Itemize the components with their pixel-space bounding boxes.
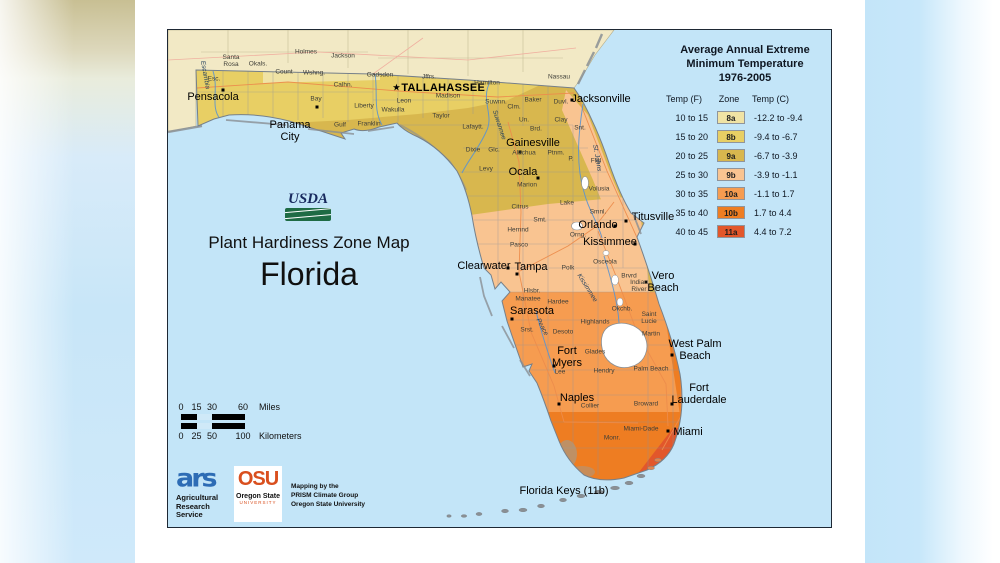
scale-tick: 15 (191, 402, 201, 412)
county-label: Gulf (334, 123, 346, 130)
county-label: Saint Lucie (641, 312, 657, 326)
county-label: Hlsbr. (524, 289, 541, 296)
scale-tick: 100 (235, 431, 250, 441)
miles-tick-row: Miles 0153060 (179, 402, 339, 412)
county-label: Franklin (357, 122, 380, 129)
legend-column-headers: Temp (F) Zone Temp (C) (660, 94, 830, 104)
county-label: Bay (310, 97, 321, 104)
legend: Average Annual Extreme Minimum Temperatu… (660, 44, 830, 241)
county-label: Leon (397, 99, 411, 106)
legend-row: 35 to 4010b1.7 to 4.4 (660, 203, 830, 222)
legend-title-line: 1976-2005 (660, 72, 830, 86)
scale-tick: 0 (178, 431, 183, 441)
city-label: Miami (673, 427, 702, 439)
map-canvas: PensacolaPanama City★TALLAHASSEEJacksonv… (168, 30, 831, 527)
city-marker (671, 403, 674, 406)
city-marker (625, 220, 628, 223)
legend-temp-f: 35 to 40 (660, 208, 710, 218)
county-label: Orng. (570, 233, 586, 240)
county-label: Srst. (520, 328, 533, 335)
city-marker (222, 89, 225, 92)
county-label: Wshng. (303, 71, 325, 78)
county-label: Desoto (553, 330, 574, 337)
osu-university-label: UNIVERSITY (234, 500, 282, 505)
legend-temp-c: -12.2 to -9.4 (752, 113, 830, 123)
legend-temp-c: 4.4 to 7.2 (752, 227, 830, 237)
county-label: Santa Rosa (223, 55, 240, 69)
county-label: Collier (581, 404, 599, 411)
city-label: Ocala (509, 167, 538, 179)
county-label: Un. (519, 118, 529, 125)
legend-row: 30 to 3510a-1.1 to 1.7 (660, 184, 830, 203)
county-label: Hardee (547, 300, 568, 307)
city-label: Panama City (270, 120, 311, 144)
county-label: Miami-Dade (623, 427, 658, 434)
kilometers-bar (181, 423, 245, 429)
city-label: Fort Lauderdale (671, 383, 726, 407)
county-label: Holmes (295, 50, 317, 57)
city-label: Jacksonville (571, 94, 630, 106)
county-label: Count (275, 70, 292, 77)
legend-zone-swatch: 8a (717, 111, 745, 124)
river-label: Kissimmee (576, 273, 599, 304)
county-label: Indian River (630, 280, 648, 294)
city-label: Gainesville (506, 138, 560, 150)
osu-name: Oregon State (234, 493, 282, 500)
legend-header-zone: Zone (715, 94, 743, 104)
mapping-credit-line: PRISM Climate Group (291, 492, 365, 501)
scale-tick: 50 (207, 431, 217, 441)
ars-logo-icon: ars (176, 467, 232, 491)
page: PensacolaPanama City★TALLAHASSEEJacksonv… (0, 0, 1000, 563)
county-label: Madison (436, 94, 461, 101)
county-label: Hendry (594, 369, 615, 376)
city-marker (511, 318, 514, 321)
county-label: P. (568, 157, 573, 164)
legend-header-temp-c: Temp (C) (750, 94, 830, 104)
mapping-credit: Mapping by the PRISM Climate Group Orego… (291, 483, 365, 509)
county-label: Citrus (512, 205, 529, 212)
county-label: Lake (560, 201, 574, 208)
mapping-credit-line: Oregon State University (291, 501, 365, 510)
legend-zone-swatch: 9b (717, 168, 745, 181)
county-label: Levy (479, 167, 493, 174)
legend-title-line: Minimum Temperature (660, 58, 830, 72)
county-label: Marion (517, 183, 537, 190)
county-label: Lafaytt. (462, 125, 483, 132)
scale-bar: Miles 0153060 Kilometers 02550100 (179, 402, 339, 441)
legend-zone-swatch: 10a (717, 187, 745, 200)
usda-field-icon (285, 208, 331, 221)
city-marker (667, 430, 670, 433)
city-label: Pensacola (187, 92, 238, 104)
county-label: Smt. (533, 218, 546, 225)
ars-logo-block: ars Agricultural Research Service (176, 466, 232, 520)
osu-logo-icon: OSU (234, 469, 282, 489)
city-label: Orlando (578, 220, 617, 232)
county-label: Glades (585, 350, 606, 357)
legend-zone-swatch: 9a (717, 149, 745, 162)
county-label: Pasco (510, 243, 528, 250)
county-label: Snt. (574, 126, 586, 133)
capital-star-icon: ★ (393, 83, 400, 92)
county-label: Okchb. (612, 307, 633, 314)
county-label: Lee (555, 370, 566, 377)
left-blur-band (0, 0, 135, 563)
county-label: Dixie (466, 148, 480, 155)
county-label: Suwnn. (485, 100, 507, 107)
county-label: Volusia (589, 187, 610, 194)
city-marker (614, 225, 617, 228)
legend-temp-c: -6.7 to -3.9 (752, 151, 830, 161)
right-blur-band (865, 0, 1000, 563)
legend-temp-f: 25 to 30 (660, 170, 710, 180)
county-label: Okals. (249, 62, 267, 69)
map-panel: PensacolaPanama City★TALLAHASSEEJacksonv… (167, 29, 832, 528)
county-label: Jffrs. (422, 75, 436, 82)
osu-logo-block: OSU Oregon State UNIVERSITY (234, 466, 282, 522)
county-label: Wakulla (382, 108, 405, 115)
legend-temp-c: -3.9 to -1.1 (752, 170, 830, 180)
county-label: Martin (642, 332, 660, 339)
county-label: Alachua (512, 151, 536, 158)
county-label: Clay (554, 118, 567, 125)
miles-bar (181, 414, 245, 420)
ars-text: Agricultural Research Service (176, 494, 232, 520)
scale-tick: 60 (238, 402, 248, 412)
city-label: Fort Myers (552, 346, 582, 370)
legend-zone-swatch: 11a (717, 225, 745, 238)
map-title: Plant Hardiness Zone Map (168, 233, 450, 253)
legend-temp-c: 1.7 to 4.4 (752, 208, 830, 218)
county-label: Baker (525, 98, 542, 105)
scale-tick: 0 (178, 402, 183, 412)
legend-temp-f: 15 to 20 (660, 132, 710, 142)
county-label: Liberty (354, 104, 374, 111)
city-label: West Palm Beach (669, 339, 722, 363)
city-label: Sarasota (510, 306, 554, 318)
city-marker (558, 403, 561, 406)
county-label: Clm. (507, 105, 520, 112)
legend-temp-c: -1.1 to 1.7 (752, 189, 830, 199)
legend-temp-f: 30 to 35 (660, 189, 710, 199)
city-marker (537, 177, 540, 180)
county-label: Jackson (331, 54, 355, 61)
county-label: Taylor (432, 114, 449, 121)
county-label: Monr. (604, 436, 620, 443)
usda-logo: USDA (284, 192, 332, 221)
legend-rows: 10 to 158a-12.2 to -9.415 to 208b-9.4 to… (660, 108, 830, 241)
scale-tick: 25 (191, 431, 201, 441)
city-label: Clearwater (457, 261, 510, 273)
legend-row: 40 to 4511a4.4 to 7.2 (660, 222, 830, 241)
legend-title-line: Average Annual Extreme (660, 44, 830, 58)
credits: ars Agricultural Research Service OSU Or… (176, 466, 365, 522)
county-label: Hernnd (507, 228, 528, 235)
scale-tick: 30 (207, 402, 217, 412)
florida-keys-label: Florida Keys (11b) (519, 485, 608, 497)
miles-bar-segment (197, 414, 213, 420)
map-state-title: Florida (168, 256, 450, 293)
city-marker (671, 354, 674, 357)
county-label: Duvl. (554, 100, 569, 107)
kilometers-bar-segment (197, 423, 213, 429)
county-label: Brd. (530, 127, 542, 134)
legend-temp-f: 20 to 25 (660, 151, 710, 161)
county-label: Calhn. (334, 83, 353, 90)
county-label: Polk (562, 266, 575, 273)
city-marker (316, 106, 319, 109)
legend-temp-f: 10 to 15 (660, 113, 710, 123)
legend-row: 15 to 208b-9.4 to -6.7 (660, 127, 830, 146)
city-marker (571, 99, 574, 102)
legend-row: 25 to 309b-3.9 to -1.1 (660, 165, 830, 184)
legend-title: Average Annual Extreme Minimum Temperatu… (660, 44, 830, 85)
county-label: Hamilton (474, 81, 500, 88)
river-label: Peace (535, 317, 550, 337)
county-label: Broward (634, 402, 658, 409)
legend-temp-f: 40 to 45 (660, 227, 710, 237)
city-label: Tampa (514, 262, 547, 274)
city-marker (507, 267, 510, 270)
river-label: Suwannee (491, 109, 507, 140)
city-marker (634, 243, 637, 246)
mapping-credit-line: Mapping by the (291, 483, 365, 492)
legend-row: 10 to 158a-12.2 to -9.4 (660, 108, 830, 127)
city-label: Vero Beach (647, 271, 678, 295)
km-tick-row: Kilometers 02550100 (179, 431, 339, 441)
county-label: Highlands (581, 320, 610, 327)
county-label: Smnl. (590, 210, 607, 217)
county-label: Gadsden (367, 73, 393, 80)
usda-logo-text: USDA (284, 192, 332, 207)
ars-text-line: Service (176, 511, 232, 520)
county-label: Manatee (515, 297, 540, 304)
city-marker (516, 273, 519, 276)
legend-row: 20 to 259a-6.7 to -3.9 (660, 146, 830, 165)
legend-zone-swatch: 10b (717, 206, 745, 219)
city-marker (553, 365, 556, 368)
county-label: Palm Beach (633, 367, 668, 374)
county-label: Osceola (593, 260, 617, 267)
legend-header-temp-f: Temp (F) (660, 94, 708, 104)
county-label: Glc. (488, 148, 500, 155)
legend-temp-c: -9.4 to -6.7 (752, 132, 830, 142)
county-label: Ptnm. (548, 151, 565, 158)
county-label: Nassau (548, 75, 570, 82)
legend-zone-swatch: 8b (717, 130, 745, 143)
city-label: Kissimmee (583, 237, 637, 249)
